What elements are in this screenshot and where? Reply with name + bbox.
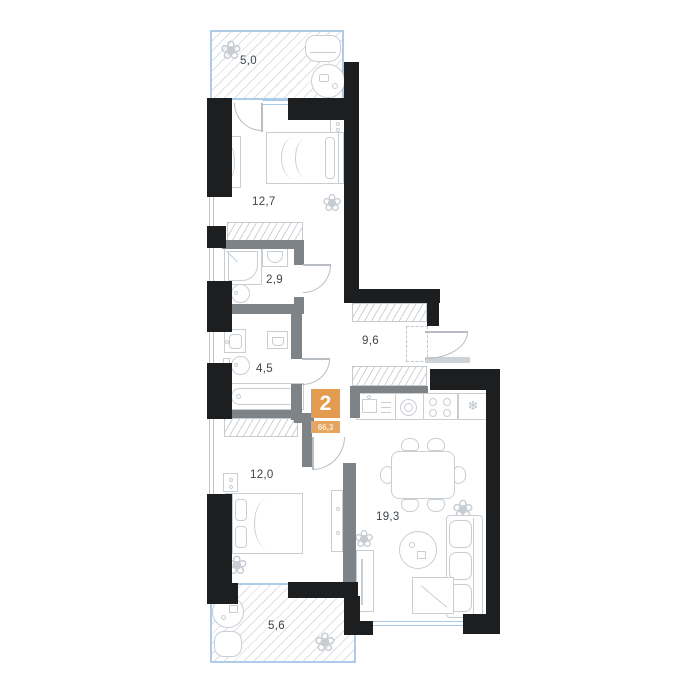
decor-dot (221, 615, 226, 620)
wall (288, 98, 359, 120)
balcony-door-sill (262, 100, 289, 105)
basin-bowl (267, 251, 283, 263)
room-label-bedroom-top: 12,7 (252, 196, 276, 208)
laundry-basket (267, 331, 288, 349)
knob (336, 122, 340, 126)
blanket-fold (295, 139, 315, 177)
stove-burner (443, 409, 451, 417)
total-area-badge: 66,3 (311, 421, 340, 433)
wardrobe-hatched (352, 303, 427, 322)
bed-pillow (235, 499, 247, 521)
wall (344, 621, 373, 635)
room-label-bathroom: 4,5 (256, 363, 273, 375)
knob (229, 478, 233, 482)
knob (336, 128, 340, 132)
coffee-table (399, 531, 437, 569)
rooms-count-badge: 2 (311, 389, 340, 418)
basket-body (272, 337, 284, 346)
drawer-line (381, 412, 391, 413)
window (372, 621, 463, 626)
floor-plan: ❀ ❀ (0, 0, 700, 700)
sofa-cushion (449, 520, 472, 548)
room-label-living-kitchen: 19,3 (376, 511, 400, 523)
drawer-line (381, 402, 391, 403)
decor-dot (409, 542, 415, 548)
partition-wall (350, 390, 360, 418)
window (209, 419, 214, 494)
drawer-line (381, 407, 391, 408)
armchair-seat-line (310, 52, 336, 53)
nightstand (223, 473, 238, 492)
counter-divider (423, 394, 424, 419)
wardrobe-hatched (227, 222, 303, 241)
nightstand (330, 119, 345, 133)
fridge-icon: ❄ (459, 394, 487, 419)
partition-wall (222, 240, 304, 249)
wall (207, 363, 232, 419)
plant-icon: ❀ (322, 191, 342, 215)
bed-single (266, 132, 344, 184)
stove-burner (429, 409, 437, 417)
window (209, 197, 214, 226)
balcony-armchair (305, 35, 341, 62)
sofa-cushion (449, 552, 472, 580)
bathtub-drain (236, 394, 241, 399)
faucet-dot (225, 340, 229, 344)
partition-wall (222, 410, 302, 418)
door-leaf (312, 437, 314, 470)
kitchen-sink (362, 399, 377, 413)
partition-wall (291, 313, 302, 359)
room-label-balcony-bottom: 5,6 (268, 620, 285, 632)
counter-divider (395, 394, 396, 419)
door-leaf (303, 264, 331, 266)
bathtub-inner (231, 388, 299, 405)
wall (207, 226, 226, 248)
toilet-drain (234, 363, 238, 367)
dining-chair (380, 466, 392, 484)
ottoman-pillow-line (421, 585, 448, 608)
wall (207, 98, 232, 197)
partition-wall (294, 240, 304, 265)
washing-machine-inner (404, 403, 413, 412)
wall (427, 289, 439, 326)
partition-wall (343, 463, 356, 583)
washbasin (262, 246, 288, 267)
bed-double (225, 493, 303, 554)
kettle-icon (319, 74, 329, 82)
entry-door-leaf (425, 331, 468, 333)
window (209, 248, 214, 281)
wall (486, 380, 500, 632)
dining-chair (401, 438, 419, 451)
partition-wall (350, 386, 428, 393)
stove-burner (429, 398, 437, 406)
basin-bowl (229, 334, 242, 349)
balcony-table (311, 64, 345, 98)
window (209, 332, 214, 363)
refrigerator: ❄ (458, 393, 488, 420)
room-label-balcony-top: 5,0 (240, 55, 257, 67)
dresser (331, 490, 343, 552)
door-leaf (302, 358, 330, 360)
toilet-drain (234, 291, 238, 295)
entry-door-arc (425, 332, 468, 359)
partition-wall (222, 304, 302, 314)
bed-headboard (232, 494, 233, 553)
balcony-chair (214, 631, 242, 657)
knob (336, 531, 340, 535)
decor-square (229, 605, 238, 613)
wardrobe-hatched (352, 366, 427, 386)
wall (207, 281, 232, 332)
dining-chair (427, 438, 445, 451)
bed-pillow (325, 137, 335, 179)
plant-icon: ❀ (314, 630, 336, 656)
bed-headboard (338, 133, 339, 183)
stove-burner (443, 398, 451, 406)
dining-table (391, 451, 455, 499)
wardrobe-hatched (224, 418, 298, 437)
door-arc (302, 359, 330, 385)
cup-icon (332, 83, 338, 89)
sofa-back-line (473, 518, 474, 617)
dining-chair (401, 499, 419, 512)
room-label-shower-room: 2,9 (266, 274, 283, 286)
sofa-ottoman (412, 577, 454, 614)
dining-chair (454, 466, 466, 484)
plant-icon: ❀ (220, 38, 242, 64)
door-arc (303, 265, 331, 293)
washbasin (224, 329, 246, 353)
wall (344, 289, 440, 303)
door-leaf (261, 103, 263, 132)
kitchen-counter (356, 393, 458, 420)
knob (229, 485, 233, 489)
bed-pillow (235, 526, 247, 548)
wall (207, 583, 238, 604)
apartment-badge: 2 66,3 (311, 389, 340, 433)
door-arc (234, 103, 262, 131)
door-arc (312, 437, 345, 470)
tv-screen (361, 559, 363, 605)
dining-chair (427, 499, 445, 512)
plant-icon: ❀ (354, 527, 374, 551)
wall (463, 614, 500, 634)
faucet-dot (367, 395, 371, 399)
decor-square (417, 551, 426, 559)
blanket-fold (254, 499, 280, 548)
room-label-hallway: 9,6 (362, 335, 379, 347)
shower-cabin (224, 247, 262, 285)
room-label-bedroom-bottom: 12,0 (250, 469, 274, 481)
knob (336, 507, 340, 511)
